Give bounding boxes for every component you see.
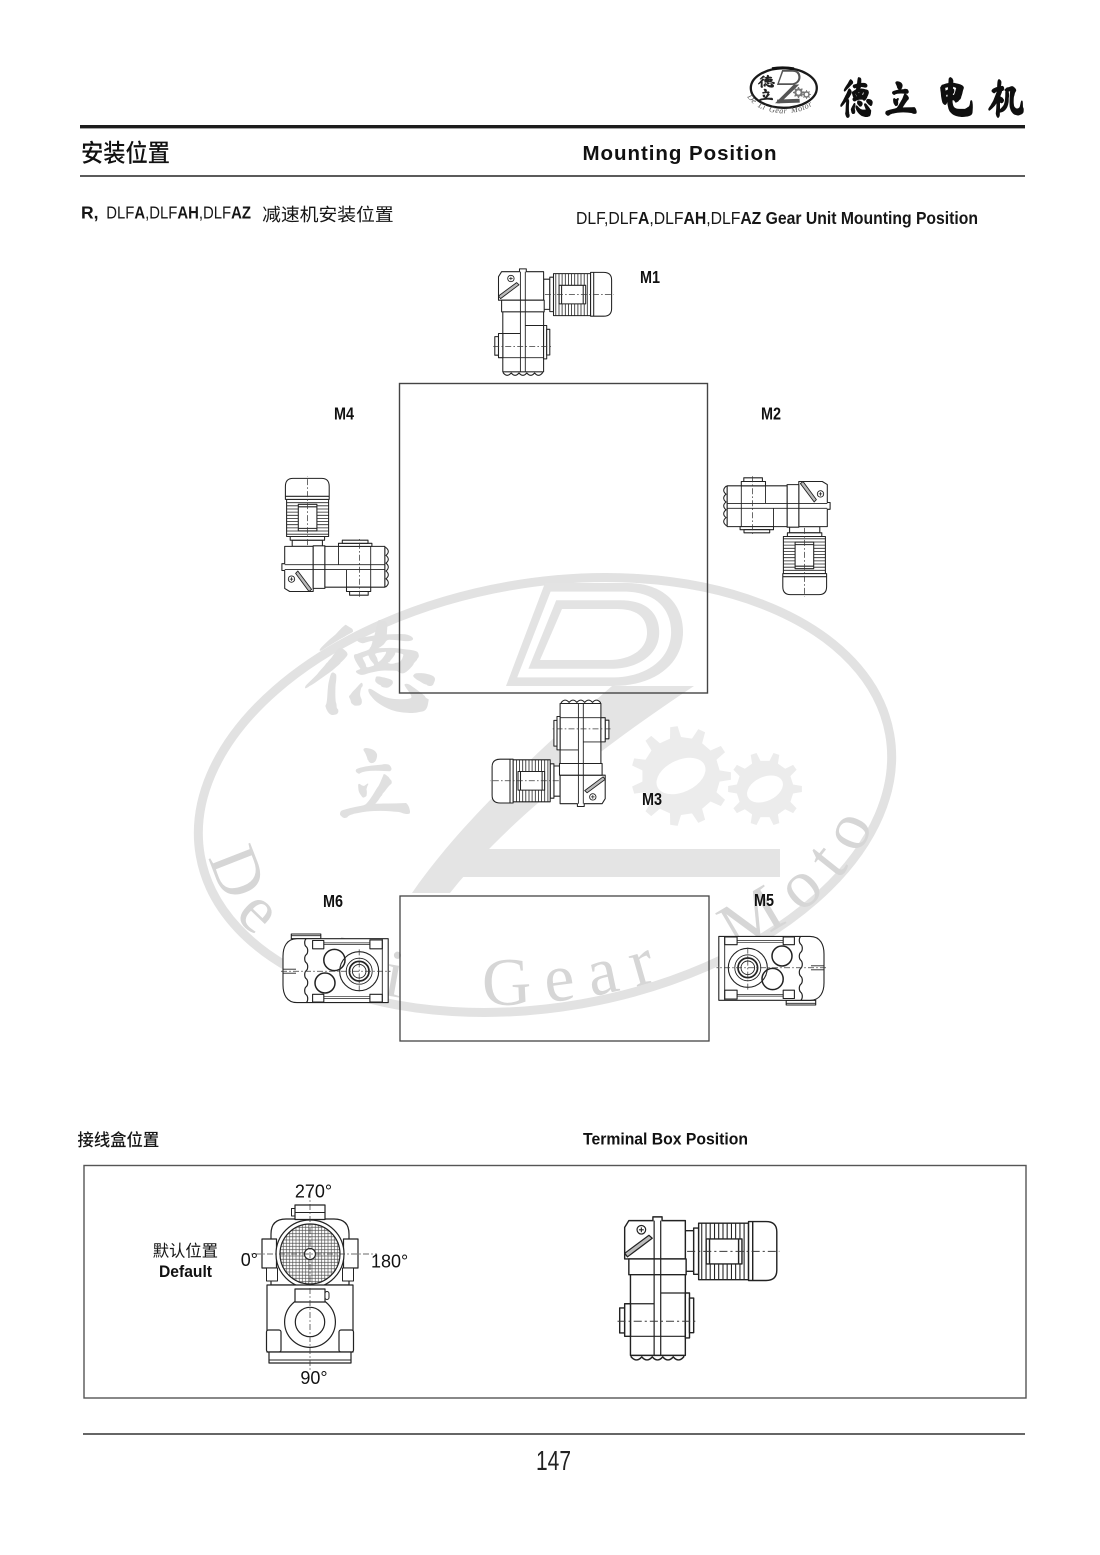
svg-text:Default: Default: [159, 1262, 212, 1281]
svg-text:Mounting Position: Mounting Position: [583, 142, 777, 165]
svg-text:M3: M3: [642, 789, 662, 809]
svg-text:M1: M1: [640, 267, 660, 287]
svg-text:147: 147: [536, 1445, 571, 1476]
svg-text:180°: 180°: [371, 1252, 408, 1272]
svg-text:Terminal Box Position: Terminal Box Position: [583, 1131, 748, 1149]
svg-text:0°: 0°: [241, 1250, 258, 1270]
svg-text:DLFA,DLFAH,DLFAZ: DLFA,DLFAH,DLFAZ: [106, 203, 251, 222]
svg-text:DLF,DLFA,DLFAH,DLFAZ Gear Unit: DLF,DLFA,DLFAH,DLFAZ Gear Unit Mounting …: [576, 208, 978, 228]
svg-text:M6: M6: [323, 891, 343, 911]
svg-text:M4: M4: [334, 404, 354, 424]
svg-text:90°: 90°: [300, 1368, 327, 1388]
svg-text:R,: R,: [81, 203, 99, 223]
svg-text:M5: M5: [754, 890, 774, 910]
svg-text:M2: M2: [761, 404, 781, 424]
svg-text:270°: 270°: [295, 1182, 332, 1202]
